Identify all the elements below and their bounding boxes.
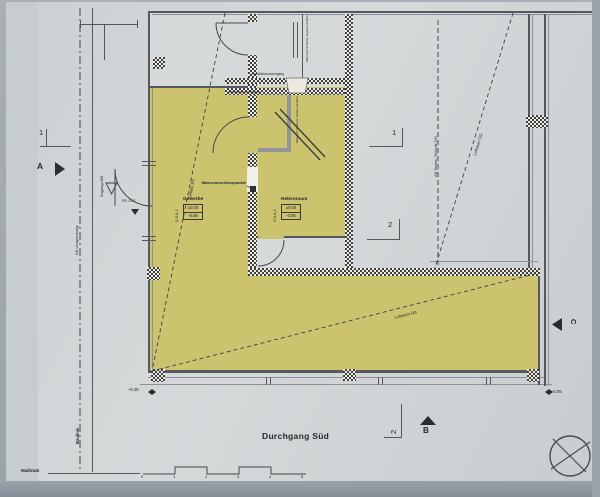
footer-label: Maßstab (21, 469, 39, 474)
scale-tick: 0 (141, 475, 143, 479)
room-label-nebenraum: Nebenraum (281, 198, 307, 203)
section-arrow-a-icon (55, 162, 65, 176)
scale-tick: 2 (205, 475, 207, 479)
wall-opening-trapezoid (286, 78, 308, 93)
plan-vector-overlay (0, 0, 600, 497)
section-arrow-b-icon (420, 416, 436, 425)
door-swing-mid (213, 117, 249, 153)
annotation-ak-umgrenzung: AK Umgrenzung (75, 226, 79, 255)
section-marker-a: A (37, 162, 43, 171)
scale-bar (143, 467, 306, 474)
scale-tick: 4 (269, 475, 271, 479)
floor-plan-photo: A B C 1 1 2 2 G.0.6-1 Gewerbe ±0.00 -0.5… (0, 0, 600, 497)
annotation-installation-bottom: Installationsdurchgang (228, 91, 260, 94)
scale-tick: 3 (237, 475, 239, 479)
section-number-2-right: 2 (388, 221, 392, 229)
plan-title-durchgang-sued: Durchgang Süd (262, 432, 329, 441)
annotation-water-connection: Wasseranschlusspunkte (196, 182, 246, 186)
scale-tick: 5 (301, 475, 303, 479)
annotation-wand-schuerze-room: Wand als Schürze, Kanten sichtbar (296, 96, 299, 143)
section-number-1-left: 1 (39, 129, 43, 137)
section-arrow-c-icon (552, 318, 562, 331)
room-label-gewerbe: Gewerbe (183, 198, 203, 203)
airspace-dashed-line-south (152, 273, 538, 371)
level-arrow-icon (131, 209, 139, 215)
annotation-fb-level: FB -0.02 (122, 200, 135, 204)
door-swing-vestibule (258, 240, 284, 266)
annotation-installation-top: Installationsdurchgang (252, 73, 284, 76)
section-marker-c: C (570, 319, 578, 324)
room-code-gewerbe: G.0.6-1 (176, 209, 180, 222)
level-box-nebenraum-bottom: -0.56 (281, 212, 301, 221)
spot-elevation-right: -0.05 (552, 390, 562, 394)
annotation-zugang: Zugang 006 (100, 176, 104, 197)
door-swing-top-room (216, 23, 248, 55)
leader-line-water (247, 186, 252, 189)
section-number-1-right: 1 (392, 129, 396, 137)
scale-tick: 1 (173, 475, 175, 479)
section-number-2-bottom: 2 (390, 430, 398, 434)
north-symbol-cross (551, 439, 590, 472)
annotation-wand-schuerze-top: Wand als Schürze, Kanten sichtbar (306, 15, 309, 62)
room-code-nebenraum: G.0.6-2 (274, 209, 278, 222)
duct-symbol (275, 109, 325, 160)
annotation-ak-decke: AK Decke, Technik OG (434, 136, 438, 177)
airspace-dashed-line-east (435, 13, 513, 268)
level-box-gewerbe-bottom: -0.56 (183, 212, 203, 221)
spot-elevation-marker-left (148, 389, 156, 395)
section-marker-b: B (423, 427, 429, 435)
spot-elevation-left: +0.38 (128, 388, 139, 392)
annotation-baulinie: Baulinie (76, 428, 80, 444)
